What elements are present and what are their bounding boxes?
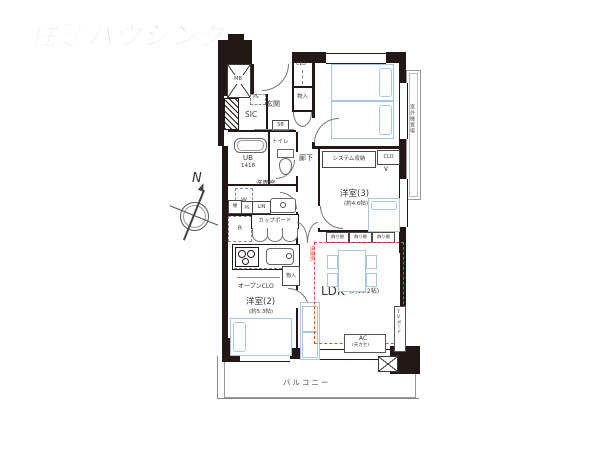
kazaridana-label: 飾り棚 bbox=[331, 235, 344, 239]
clo-right-label: CLO bbox=[383, 155, 393, 160]
wall bbox=[292, 86, 314, 88]
meter-box-label: MB bbox=[231, 75, 245, 84]
mb-text: MB bbox=[234, 77, 242, 82]
wall bbox=[399, 139, 406, 179]
bed-y2-pillow bbox=[233, 322, 246, 352]
tv-board-label: TVボード bbox=[396, 310, 401, 334]
balcony-label: バルコニー bbox=[283, 379, 330, 387]
tana-label: 棚 bbox=[233, 205, 238, 210]
cupboard-door-arc bbox=[267, 228, 283, 242]
wall bbox=[312, 146, 406, 149]
bed-y1-a-pillow bbox=[379, 68, 392, 97]
wall bbox=[399, 57, 406, 83]
y2-name: 洋室(2) bbox=[246, 298, 275, 307]
floor-heating-label: 床暖房 bbox=[309, 246, 314, 261]
kazaridana-label: 飾り棚 bbox=[377, 235, 390, 239]
structural-column-hatch bbox=[224, 98, 239, 130]
ac-sub-label: (天カセ) bbox=[352, 344, 369, 349]
company-logo: 住建ハウジング bbox=[30, 14, 226, 53]
entrance-door-arc bbox=[262, 64, 289, 91]
compass: N bbox=[168, 172, 232, 244]
monoire-kitchen-box: 物入 bbox=[282, 266, 300, 286]
bed-y1-b-pillow bbox=[379, 105, 392, 135]
window-y3-right bbox=[399, 179, 408, 227]
wall bbox=[318, 149, 320, 206]
toilet-label: トイレ bbox=[272, 140, 289, 146]
ub-label: UB bbox=[243, 155, 253, 162]
burner-icon bbox=[238, 250, 246, 258]
vent-box bbox=[378, 356, 398, 372]
burner-icon bbox=[242, 258, 249, 265]
window-top bbox=[326, 53, 386, 64]
monoire-top-label: 物入 bbox=[297, 95, 308, 101]
wall bbox=[292, 57, 294, 112]
entry-step-line bbox=[254, 129, 294, 130]
genkan-label: 玄関 bbox=[266, 101, 280, 108]
burner-icon bbox=[247, 250, 255, 258]
y1-door-arc bbox=[314, 118, 339, 143]
cupboard-label: カップボード bbox=[258, 219, 291, 225]
ps-label-2: PS bbox=[245, 206, 250, 210]
open-clo-rod bbox=[237, 277, 280, 278]
system-storage-box: システム収納 bbox=[322, 151, 376, 168]
sic-label: SIC bbox=[245, 111, 257, 119]
senmen-label: 洗面室 bbox=[256, 180, 276, 187]
monoire-door-arc bbox=[302, 112, 312, 127]
sb-label: SB bbox=[277, 123, 284, 128]
linen-box: LIN bbox=[252, 201, 271, 214]
floor-plan-page: 住建ハウジング バルコニー 室外機置場 MB PS SI bbox=[0, 0, 600, 450]
clo-top-label: CLO bbox=[296, 62, 306, 67]
ps-label: PS bbox=[253, 96, 259, 101]
toilet-tank-icon bbox=[277, 149, 294, 158]
wall bbox=[296, 176, 298, 192]
kazaridana-label: 飾り棚 bbox=[354, 235, 367, 239]
open-clo-label: オープンCLO bbox=[238, 284, 274, 290]
cupboard-door-arc bbox=[282, 228, 298, 242]
window-y1-right bbox=[399, 83, 408, 139]
floor-heating-zone bbox=[314, 242, 404, 344]
ub-size-label: 1418 bbox=[241, 164, 255, 170]
wall bbox=[296, 308, 298, 350]
compass-arrowhead-icon bbox=[198, 182, 207, 192]
clo-hanger-line bbox=[302, 70, 304, 84]
outdoor-unit-label: 室外機置場 bbox=[409, 104, 414, 134]
balcony-left-line bbox=[217, 356, 218, 398]
y3-name: 洋室(3) bbox=[340, 190, 369, 199]
sink-faucet-icon bbox=[286, 253, 292, 259]
bathtub-inner bbox=[237, 140, 264, 151]
outdoor-unit-area bbox=[406, 70, 421, 200]
rouka-label: 廊下 bbox=[299, 155, 313, 162]
faucet-icon bbox=[280, 202, 286, 208]
wall bbox=[228, 34, 244, 40]
cupboard-box: カップボード bbox=[251, 214, 299, 229]
ldk-door-arc bbox=[307, 222, 318, 243]
wall bbox=[268, 132, 270, 186]
ac-label: AC bbox=[359, 336, 367, 342]
y3-size: (約4.6帖) bbox=[344, 202, 368, 208]
clo-right-box: CLO bbox=[377, 150, 400, 165]
monoire-kitchen-label: 物入 bbox=[286, 274, 296, 279]
cupboard-door-arc bbox=[252, 228, 268, 242]
y3-door-arc bbox=[320, 206, 343, 229]
linen-label: LIN bbox=[257, 205, 265, 210]
bed-y3-pillow bbox=[371, 201, 397, 210]
refrigerator-label: R bbox=[238, 226, 242, 232]
wall bbox=[296, 132, 298, 152]
balcony-outer-line bbox=[217, 398, 419, 399]
y2-size: (約5.3帖) bbox=[249, 310, 273, 316]
clo-hanger-mark: ∨ bbox=[383, 165, 389, 173]
system-storage-label: システム収納 bbox=[333, 157, 366, 163]
toilet-door-arc bbox=[276, 160, 295, 179]
open-clo-dash-line bbox=[234, 268, 282, 270]
wall bbox=[312, 57, 315, 118]
